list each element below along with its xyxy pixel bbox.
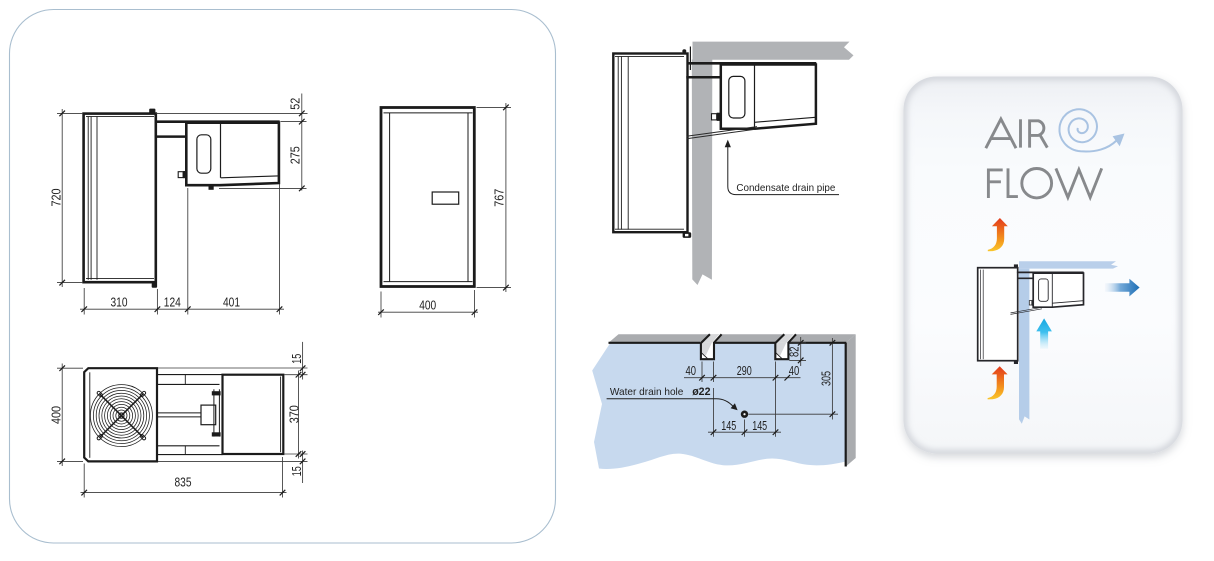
svg-text:15: 15 — [289, 466, 304, 476]
svg-text:835: 835 — [175, 474, 192, 489]
svg-text:275: 275 — [288, 146, 303, 164]
svg-text:40: 40 — [789, 363, 800, 378]
svg-text:40: 40 — [686, 363, 697, 378]
svg-text:305: 305 — [818, 371, 833, 386]
svg-text:370: 370 — [286, 405, 301, 423]
svg-text:400: 400 — [419, 298, 436, 313]
svg-text:145: 145 — [752, 418, 767, 433]
svg-text:290: 290 — [737, 363, 752, 378]
svg-text:Condensate drain pipe: Condensate drain pipe — [736, 183, 835, 194]
svg-text:720: 720 — [48, 189, 63, 207]
svg-text:52: 52 — [288, 98, 303, 110]
svg-text:15: 15 — [289, 354, 304, 364]
svg-text:400: 400 — [48, 406, 63, 424]
svg-text:ø22: ø22 — [692, 386, 710, 398]
svg-text:310: 310 — [111, 295, 128, 310]
svg-text:145: 145 — [721, 418, 736, 433]
svg-text:82: 82 — [787, 347, 802, 358]
svg-text:767: 767 — [492, 189, 507, 207]
svg-text:124: 124 — [164, 295, 181, 310]
svg-text:Water drain hole: Water drain hole — [610, 386, 684, 398]
svg-text:401: 401 — [223, 295, 240, 310]
